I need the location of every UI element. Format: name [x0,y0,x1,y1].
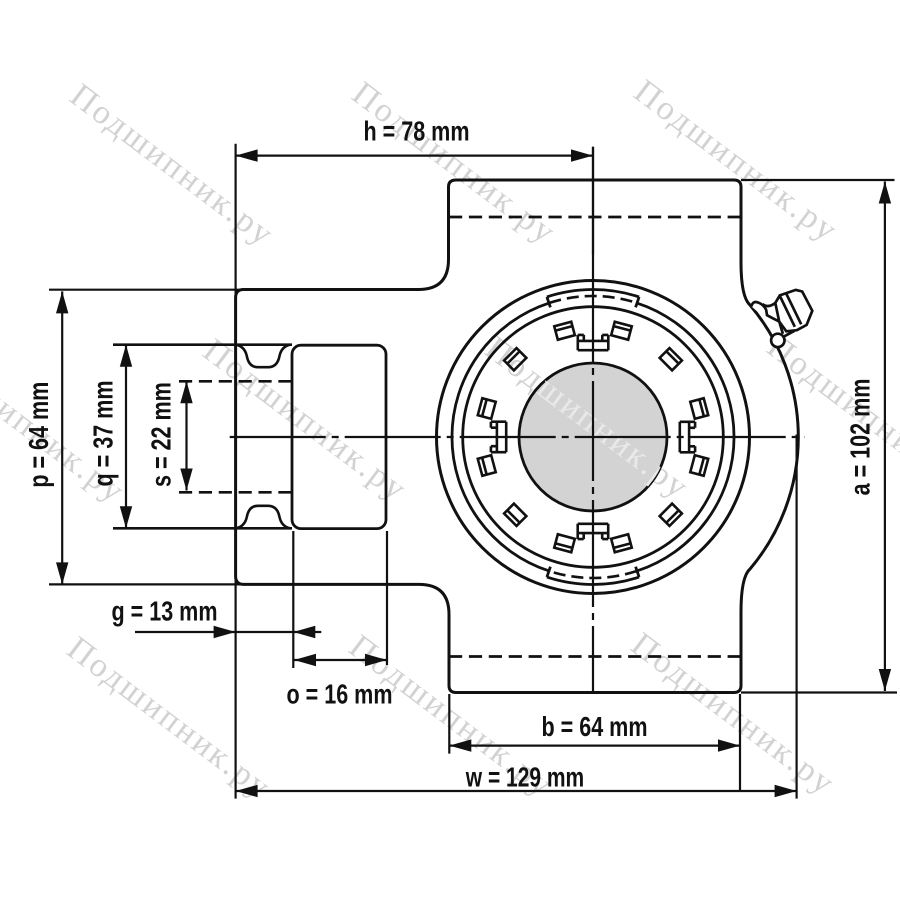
svg-text:Подшипник.ру: Подшипник.ру [63,77,281,254]
svg-text:a = 102 mm: a = 102 mm [845,379,876,496]
svg-text:q = 37 mm: q = 37 mm [88,381,119,487]
svg-text:Подшипник.ру: Подшипник.ру [624,626,842,803]
svg-text:h = 78 mm: h = 78 mm [364,116,470,147]
svg-text:Подшипник.ру: Подшипник.ру [60,630,278,807]
svg-text:w = 129 mm: w = 129 mm [465,763,584,794]
svg-text:o = 16 mm: o = 16 mm [287,679,393,710]
svg-text:s = 22 mm: s = 22 mm [146,382,177,487]
svg-text:Подшипник.ру: Подшипник.ру [196,332,414,509]
svg-text:b = 64 mm: b = 64 mm [542,711,648,742]
svg-text:Подшипник.ру: Подшипник.ру [627,73,845,250]
svg-text:g = 13 mm: g = 13 mm [112,596,218,627]
svg-text:Подшипник.ру: Подшипник.ру [345,75,563,252]
svg-text:p = 64 mm: p = 64 mm [23,382,54,488]
